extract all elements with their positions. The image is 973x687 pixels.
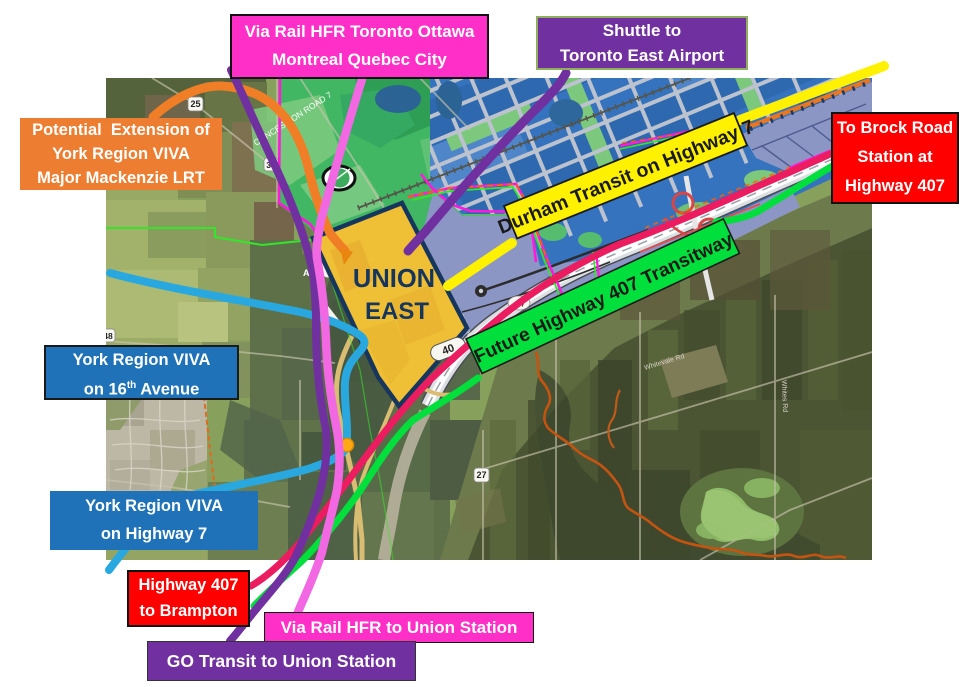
svg-text:48: 48 (103, 331, 113, 341)
svg-text:UNION: UNION (353, 265, 435, 293)
svg-text:Whites Rd: Whites Rd (780, 380, 788, 413)
svg-text:EAST: EAST (365, 298, 429, 325)
svg-text:27: 27 (476, 470, 486, 480)
svg-text:25: 25 (190, 99, 200, 109)
